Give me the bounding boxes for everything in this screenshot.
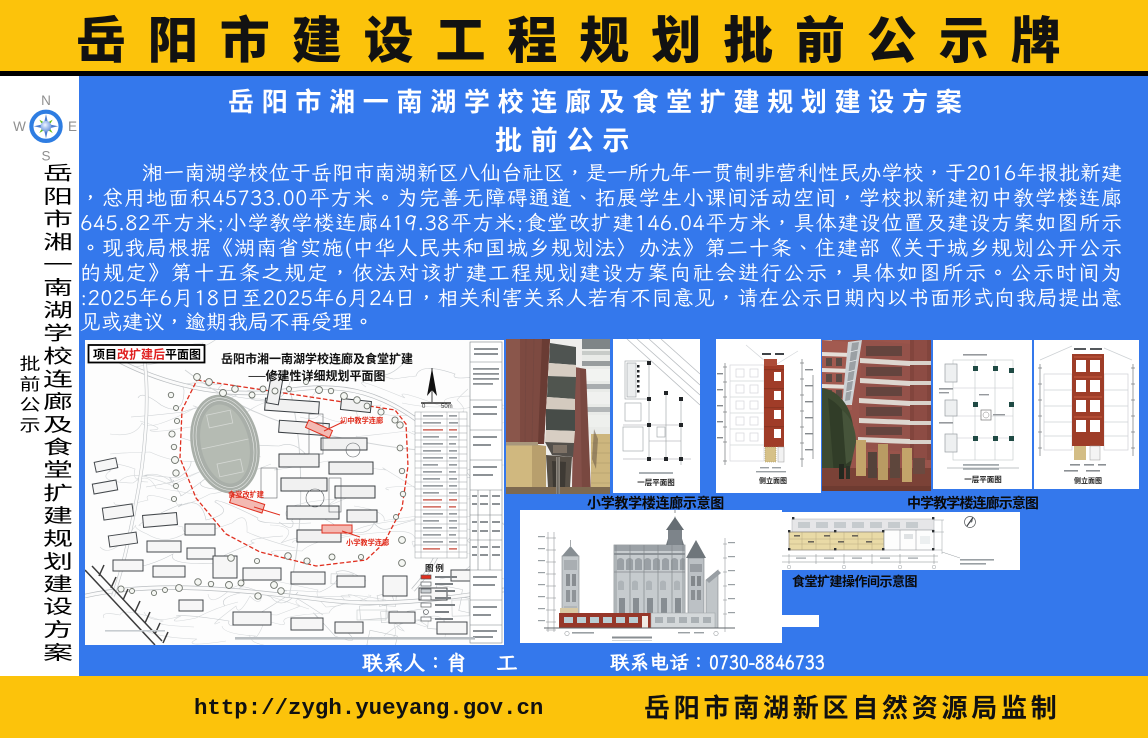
svg-text:侧立面图: 侧立面图	[759, 476, 787, 486]
svg-text:N: N	[41, 93, 51, 108]
svg-text:W: W	[13, 119, 26, 134]
svg-text:E: E	[68, 119, 77, 134]
svg-text:侧立面图: 侧立面图	[1074, 476, 1102, 486]
svg-text:项目改扩建后平面图: 项目改扩建后平面图	[93, 346, 201, 363]
svg-text:食堂改扩建: 食堂改扩建	[228, 490, 264, 500]
svg-text:──修建性详细规划平面图: ──修建性详细规划平面图	[247, 367, 385, 384]
svg-text:图 例: 图 例	[425, 562, 444, 574]
svg-text:50m: 50m	[441, 404, 453, 410]
svg-text:一层平面图: 一层平面图	[964, 474, 1002, 485]
svg-text:S: S	[41, 149, 50, 164]
svg-text:一层平面图: 一层平面图	[637, 477, 675, 488]
svg-text:岳阳市湘一南湖学校连廊及食堂扩建: 岳阳市湘一南湖学校连廊及食堂扩建	[221, 350, 413, 367]
svg-text:初中教学连廊: 初中教学连廊	[340, 416, 383, 426]
svg-text:小学教学连廊: 小学教学连廊	[346, 538, 389, 548]
